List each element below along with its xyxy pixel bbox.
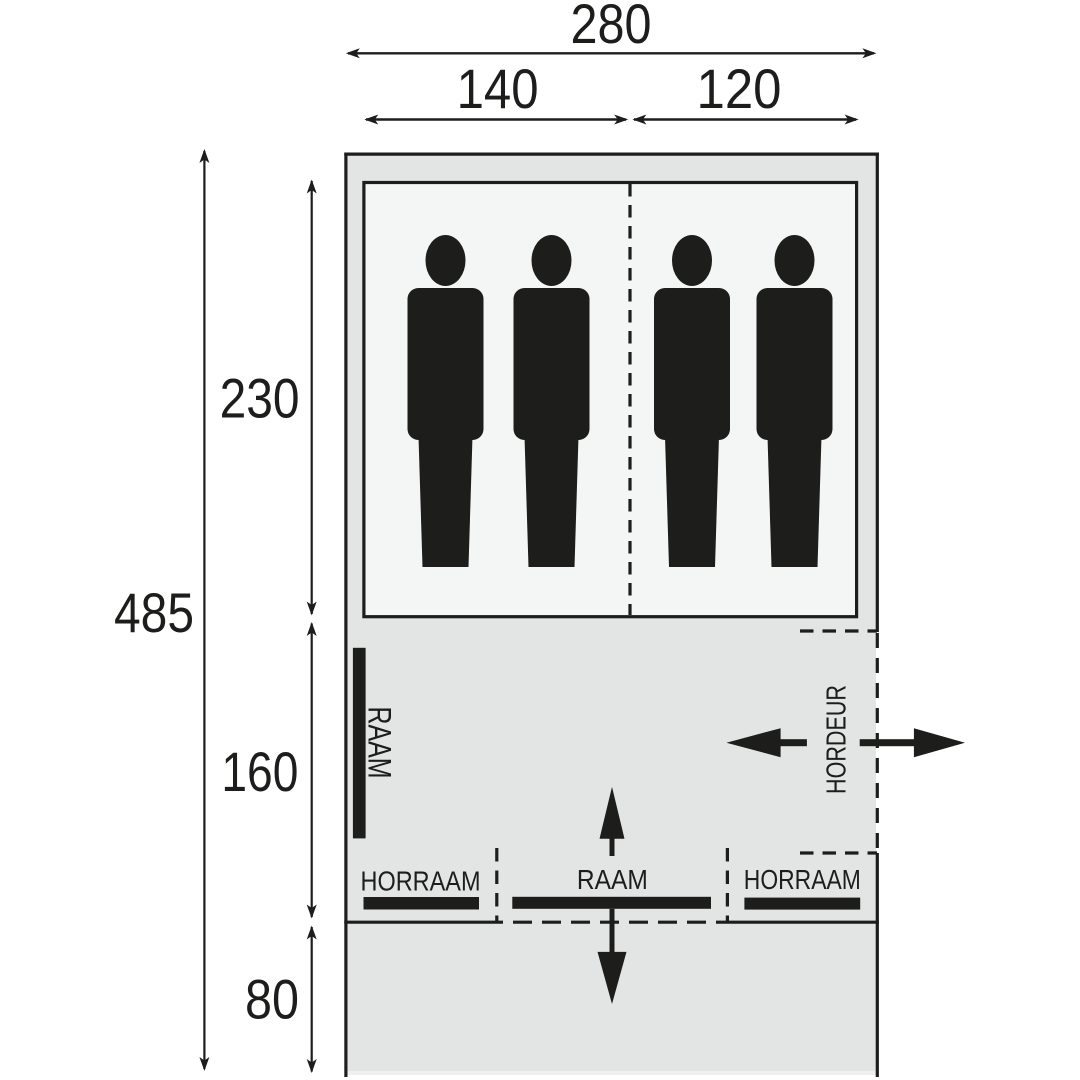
svg-text:RAAM: RAAM bbox=[577, 864, 648, 895]
svg-text:HORRAAM: HORRAAM bbox=[744, 864, 861, 895]
svg-text:120: 120 bbox=[697, 57, 782, 120]
svg-text:80: 80 bbox=[245, 968, 299, 1031]
svg-text:280: 280 bbox=[571, 0, 652, 55]
svg-text:230: 230 bbox=[220, 367, 300, 430]
svg-text:160: 160 bbox=[221, 740, 298, 803]
svg-text:RAAM: RAAM bbox=[362, 707, 398, 779]
svg-text:485: 485 bbox=[114, 581, 194, 644]
svg-text:140: 140 bbox=[457, 57, 539, 120]
svg-text:HORRAAM: HORRAAM bbox=[361, 866, 481, 897]
svg-text:HORDEUR: HORDEUR bbox=[821, 685, 852, 794]
